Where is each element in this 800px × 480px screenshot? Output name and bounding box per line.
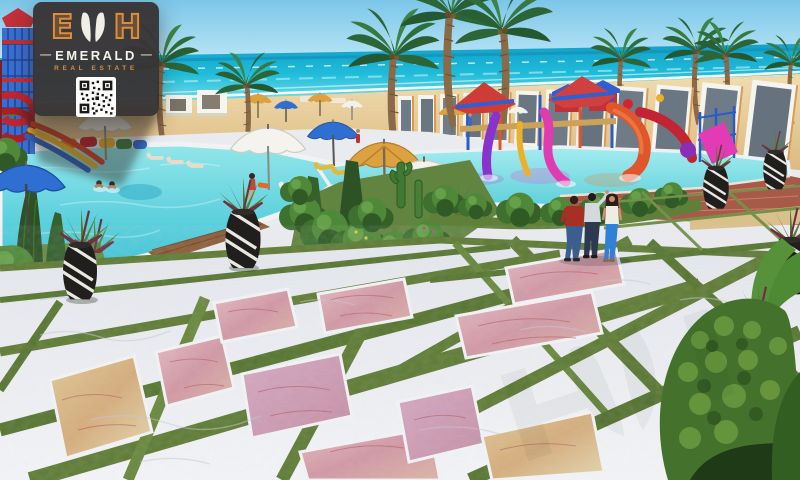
tiny-figure	[356, 129, 360, 143]
brand-name: EMERALD	[55, 48, 137, 63]
brand-name-row: — EMERALD —	[40, 48, 152, 63]
brand-logo-card: E H — EMERALD — REAL ESTATE	[33, 2, 159, 116]
cactus	[415, 180, 422, 218]
tiny-figure	[468, 113, 472, 126]
monogram-letter-h: H	[113, 10, 141, 44]
brand-subtitle: REAL ESTATE	[54, 65, 138, 72]
qr-code-icon	[76, 77, 116, 122]
brand-dash-left: —	[40, 49, 51, 61]
brand-dash-right: —	[141, 49, 152, 61]
resort-scene: E H — EMERALD — REAL ESTATE	[0, 0, 800, 480]
brand-monogram: E H	[51, 9, 141, 45]
monogram-letter-e: E	[51, 10, 74, 44]
stylized-letter-icon	[78, 9, 108, 45]
